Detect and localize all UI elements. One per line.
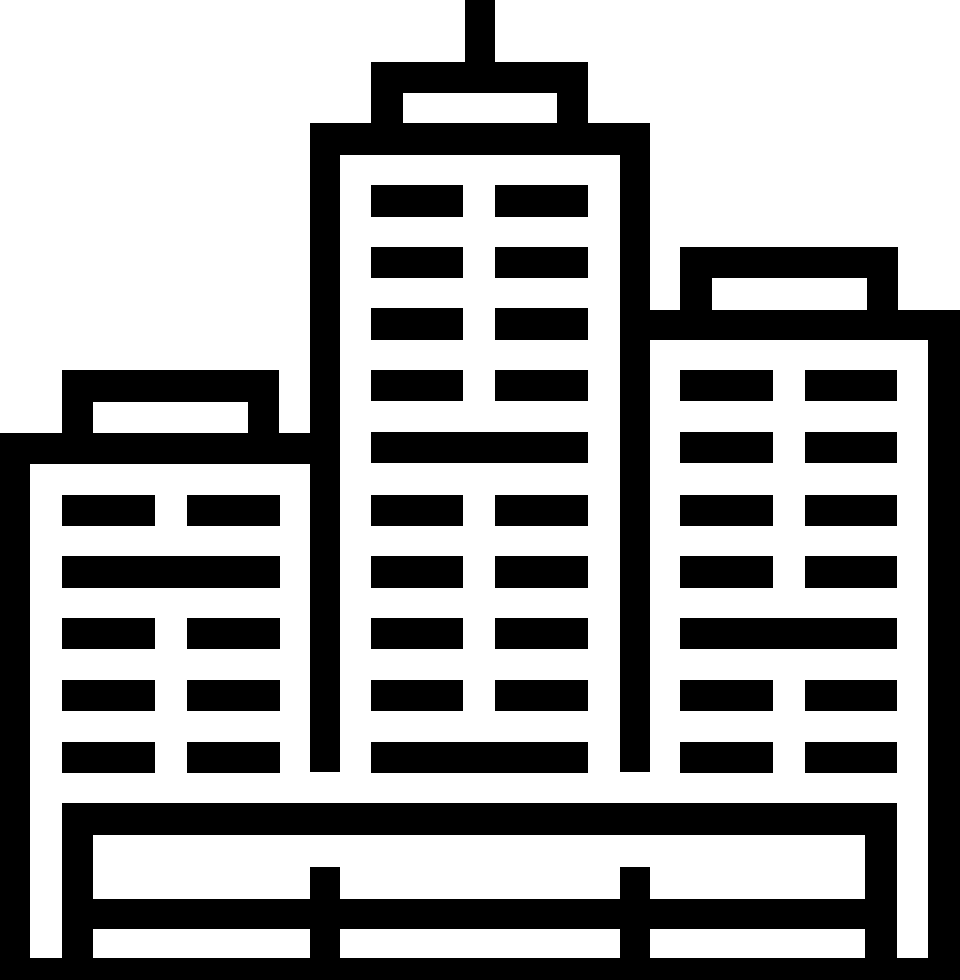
left-window-r1b xyxy=(187,495,280,526)
center-window-r9b xyxy=(495,680,588,711)
center-window-wide-lower xyxy=(371,742,588,773)
base-rail xyxy=(62,899,897,929)
left-top-band xyxy=(0,433,340,464)
right-window-r4a xyxy=(680,556,773,588)
center-window-r1b xyxy=(495,185,588,217)
antenna xyxy=(465,0,495,62)
left-window-r5b xyxy=(187,742,280,773)
ground-band xyxy=(0,958,960,980)
center-window-r7b xyxy=(495,556,588,588)
left-window-r5a xyxy=(62,742,155,773)
center-window-r8a xyxy=(371,618,463,649)
city-buildings-icon xyxy=(0,0,960,980)
right-roof-cap xyxy=(680,247,898,278)
left-window-r4b xyxy=(187,680,280,711)
frame-wall-left xyxy=(0,433,30,980)
left-window-wide xyxy=(62,556,280,588)
right-window-r2a xyxy=(680,432,773,463)
left-window-r1a xyxy=(62,495,155,526)
center-roof-cap xyxy=(371,62,588,93)
right-window-r1a xyxy=(680,370,773,401)
right-wall-right xyxy=(928,340,960,980)
base-post-left xyxy=(310,867,340,958)
base-wall-inner-right xyxy=(865,835,897,958)
center-window-r2b xyxy=(495,247,588,278)
center-top-band xyxy=(310,123,650,155)
base-post-right xyxy=(620,867,650,958)
base-wall-left xyxy=(62,835,93,958)
right-roof-pillar-left xyxy=(680,278,712,310)
center-window-r9a xyxy=(371,680,463,711)
left-window-r4a xyxy=(62,680,155,711)
right-window-r2b xyxy=(805,432,897,463)
center-roof-pillar-right xyxy=(557,93,588,123)
left-roof-cap xyxy=(62,370,279,402)
center-window-r1a xyxy=(371,185,463,217)
center-window-r6a xyxy=(371,495,463,526)
center-wall-right xyxy=(620,155,650,772)
right-window-wide xyxy=(680,618,897,649)
center-window-r6b xyxy=(495,495,588,526)
left-window-r3a xyxy=(62,618,155,649)
right-window-r7b xyxy=(805,742,897,773)
center-window-r4a xyxy=(371,370,463,401)
center-window-r3a xyxy=(371,308,463,340)
center-window-r8b xyxy=(495,618,588,649)
right-window-r4b xyxy=(805,556,897,588)
center-window-wide-upper xyxy=(371,432,588,463)
center-window-r7a xyxy=(371,556,463,588)
right-window-r3b xyxy=(805,495,897,526)
left-window-r3b xyxy=(187,618,280,649)
right-roof-pillar-right xyxy=(867,278,898,310)
right-window-r1b xyxy=(805,370,897,401)
left-roof-pillar-left xyxy=(62,402,93,433)
base-deck-band xyxy=(62,803,897,835)
center-window-r2a xyxy=(371,247,463,278)
right-window-r3a xyxy=(680,495,773,526)
center-roof-pillar-left xyxy=(371,93,403,123)
right-window-r7a xyxy=(680,742,773,773)
center-window-r4b xyxy=(495,370,588,401)
right-top-band xyxy=(650,310,960,340)
right-window-r6b xyxy=(805,680,897,711)
left-roof-pillar-right xyxy=(248,402,279,433)
right-window-r6a xyxy=(680,680,773,711)
center-window-r3b xyxy=(495,308,588,340)
